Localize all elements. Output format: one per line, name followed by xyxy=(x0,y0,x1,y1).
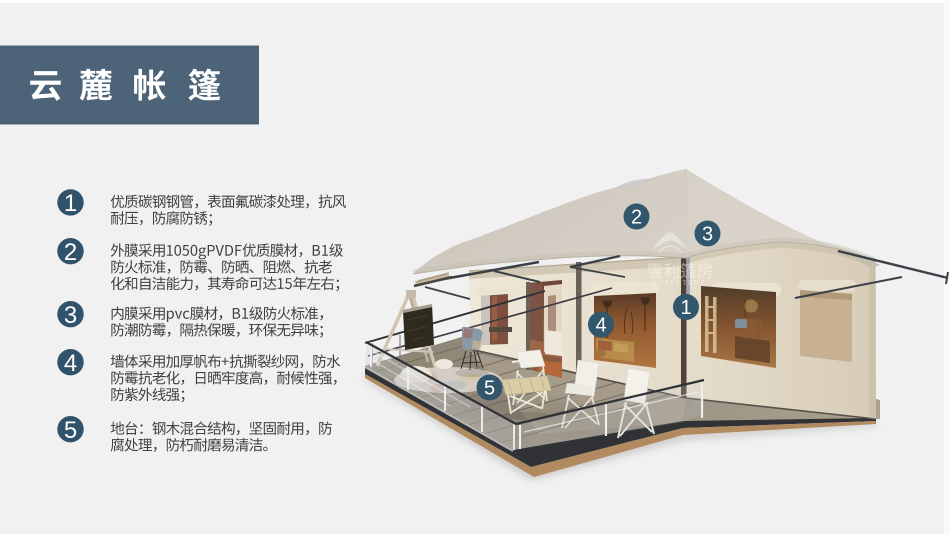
svg-text:4: 4 xyxy=(64,350,77,377)
svg-text:1: 1 xyxy=(64,190,77,217)
svg-text:2: 2 xyxy=(631,207,642,229)
svg-text:2: 2 xyxy=(64,239,77,266)
svg-text:5: 5 xyxy=(64,417,77,444)
svg-text:3: 3 xyxy=(702,224,713,246)
svg-text:3: 3 xyxy=(64,302,77,329)
svg-text:YUELI TENT: YUELI TENT xyxy=(653,279,706,287)
svg-text:4: 4 xyxy=(595,315,606,337)
svg-text:5: 5 xyxy=(484,378,495,400)
svg-text:1: 1 xyxy=(680,297,691,319)
